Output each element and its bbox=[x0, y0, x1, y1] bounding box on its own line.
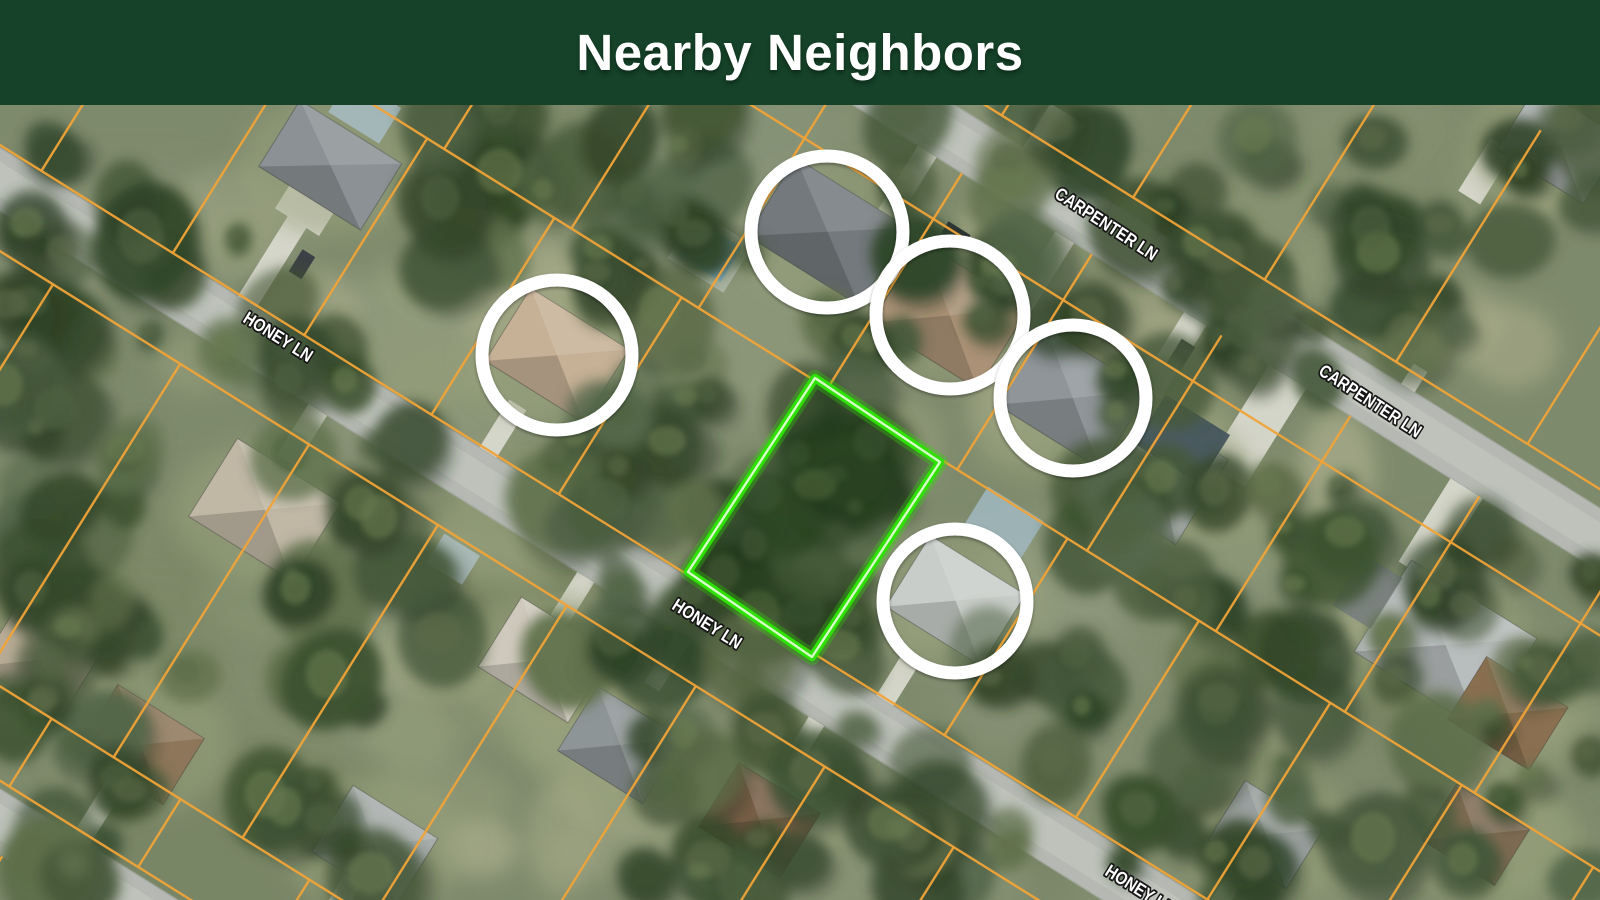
page: Nearby Neighbors HONEY LNCARPENTER LNCAR… bbox=[0, 0, 1600, 900]
map-container: HONEY LNCARPENTER LNCARPENTER LNHONEY LN… bbox=[0, 105, 1600, 900]
aerial-map: HONEY LNCARPENTER LNCARPENTER LNHONEY LN… bbox=[0, 105, 1600, 900]
header-banner: Nearby Neighbors bbox=[0, 0, 1600, 105]
page-title: Nearby Neighbors bbox=[576, 23, 1023, 82]
